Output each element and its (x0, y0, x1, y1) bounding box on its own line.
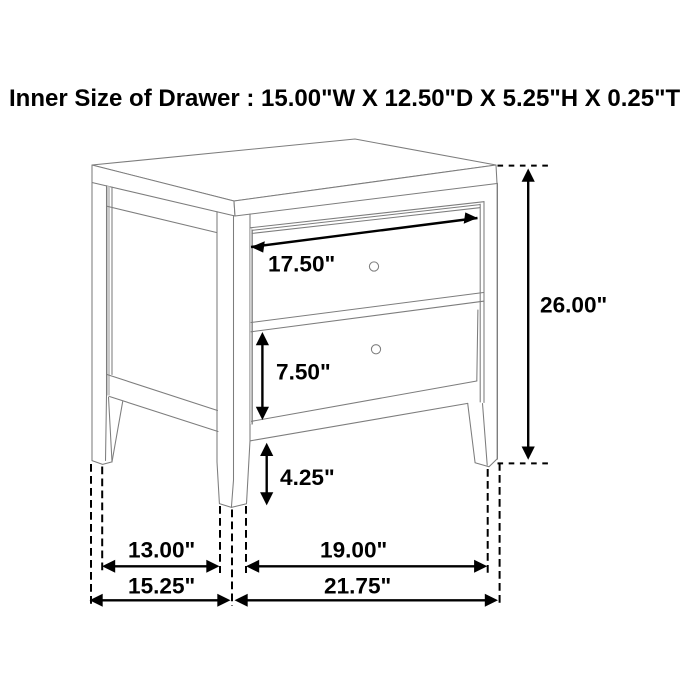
svg-text:26.00": 26.00" (540, 293, 607, 318)
svg-text:13.00": 13.00" (128, 538, 195, 563)
svg-text:7.50": 7.50" (276, 360, 331, 385)
svg-text:21.75": 21.75" (324, 574, 391, 599)
svg-text:15.25": 15.25" (128, 574, 195, 599)
svg-text:19.00": 19.00" (320, 538, 387, 563)
svg-text:4.25": 4.25" (280, 465, 335, 490)
svg-text:17.50": 17.50" (268, 252, 335, 277)
